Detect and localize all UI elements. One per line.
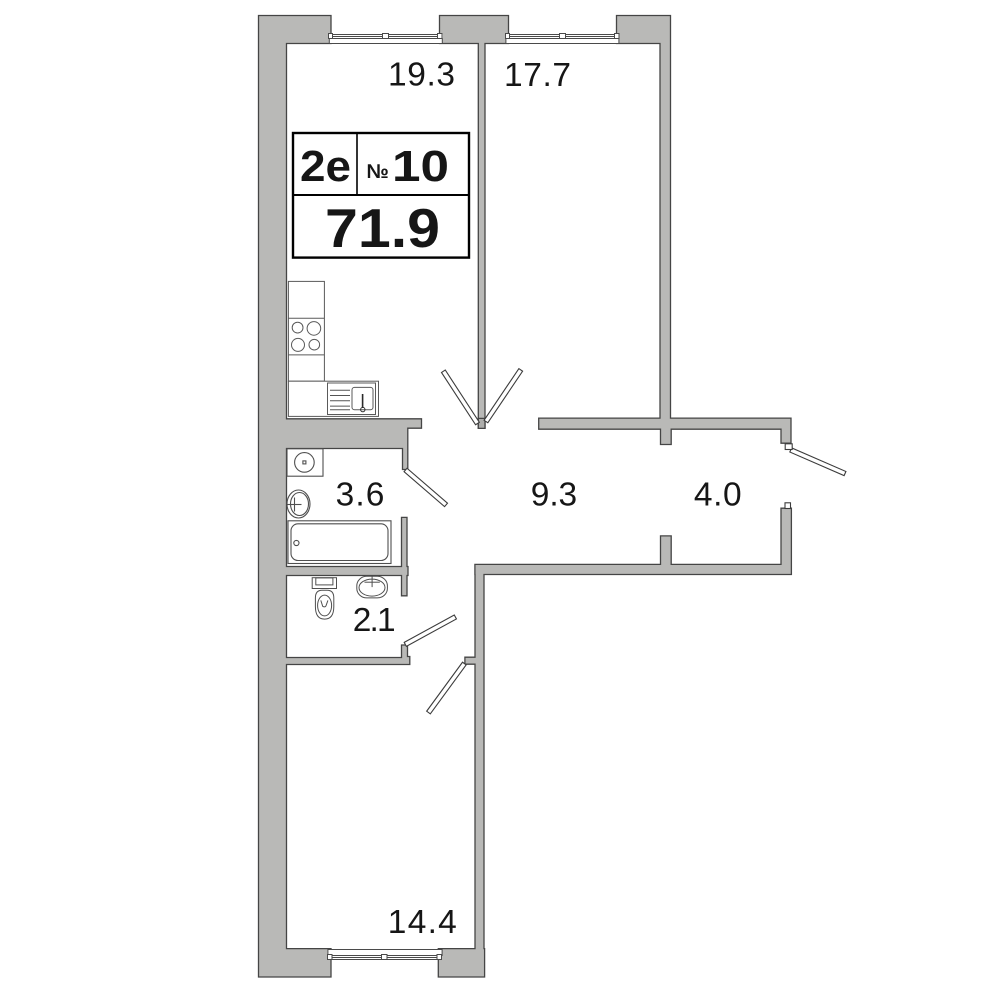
svg-text:№: № — [366, 161, 388, 183]
svg-text:2е: 2е — [300, 142, 351, 191]
svg-text:71.9: 71.9 — [325, 197, 440, 259]
svg-text:14.4: 14.4 — [388, 904, 457, 941]
svg-text:3.6: 3.6 — [336, 476, 385, 513]
svg-text:10: 10 — [392, 142, 449, 191]
svg-text:9.3: 9.3 — [531, 477, 577, 514]
svg-text:19.3: 19.3 — [388, 57, 455, 94]
svg-text:17.7: 17.7 — [504, 57, 571, 94]
svg-text:4.0: 4.0 — [694, 477, 742, 514]
svg-text:2.1: 2.1 — [353, 602, 396, 639]
